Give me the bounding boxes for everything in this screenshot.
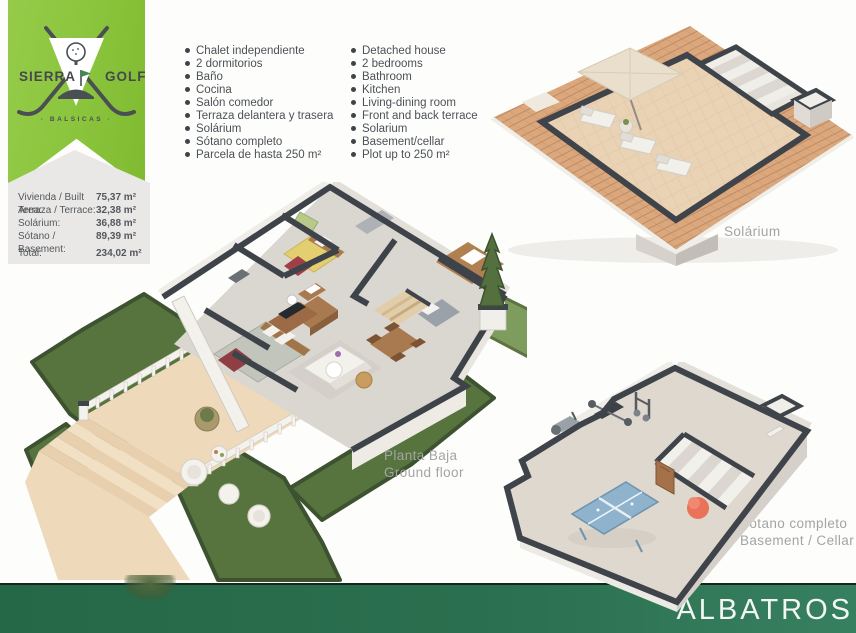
bullet-icon bbox=[185, 152, 190, 157]
feature-text: Terraza delantera y trasera bbox=[196, 110, 333, 122]
side-table bbox=[620, 119, 633, 133]
bullet-icon bbox=[351, 126, 356, 131]
ground-floor-plan-label: Planta Baja Ground floor bbox=[384, 447, 464, 481]
label-line-en: Ground floor bbox=[384, 464, 464, 481]
feature-text: Cocina bbox=[196, 84, 232, 96]
feature-text: Parcela de hasta 250 m² bbox=[196, 149, 321, 161]
ground-floor-plan-illustration bbox=[22, 182, 527, 582]
feature-text: Bathroom bbox=[362, 71, 412, 83]
list-item: 2 dormitorios bbox=[185, 58, 350, 71]
bullet-icon bbox=[185, 61, 190, 66]
bullet-icon bbox=[351, 113, 356, 118]
list-item: Solarium bbox=[351, 123, 496, 136]
features-list-spanish: Chalet independiente 2 dormitorios Baño … bbox=[185, 45, 350, 162]
bullet-icon bbox=[185, 100, 190, 105]
list-item: Sótano completo bbox=[185, 136, 350, 149]
list-item: Kitchen bbox=[351, 84, 496, 97]
list-item: Salón comedor bbox=[185, 97, 350, 110]
feature-text: Living-dining room bbox=[362, 97, 456, 109]
logo-word-sierra: SIERRA bbox=[19, 69, 76, 84]
list-item: Detached house bbox=[351, 45, 496, 58]
list-item: Plot up to 250 m² bbox=[351, 149, 496, 162]
bullet-icon bbox=[185, 74, 190, 79]
feature-text: Plot up to 250 m² bbox=[362, 149, 450, 161]
bullet-icon bbox=[351, 74, 356, 79]
vase bbox=[335, 351, 341, 357]
feature-text: Salón comedor bbox=[196, 97, 273, 109]
feature-text: Basement/cellar bbox=[362, 136, 444, 148]
cypress-tree bbox=[478, 234, 508, 330]
bullet-icon bbox=[185, 139, 190, 144]
bullet-icon bbox=[185, 48, 190, 53]
features-list-english: Detached house 2 bedrooms Bathroom Kitch… bbox=[351, 45, 496, 162]
bullet-icon bbox=[351, 139, 356, 144]
logo-mound bbox=[58, 90, 94, 100]
list-item: Terraza delantera y trasera bbox=[185, 110, 350, 123]
list-item: Bathroom bbox=[351, 71, 496, 84]
bullet-icon bbox=[185, 113, 190, 118]
list-item: Chalet independiente bbox=[185, 45, 350, 58]
label-line-es: Planta Baja bbox=[384, 447, 464, 464]
logo-word-golf: GOLF bbox=[105, 69, 147, 84]
list-item: Solárium bbox=[185, 123, 350, 136]
basement-plan-illustration bbox=[486, 362, 856, 612]
feature-text: Baño bbox=[196, 71, 223, 83]
feature-text: Solarium bbox=[362, 123, 407, 135]
list-item: Parcela de hasta 250 m² bbox=[185, 149, 350, 162]
feature-text: 2 bedrooms bbox=[362, 58, 423, 70]
bean-bag bbox=[687, 497, 709, 519]
brochure-page: SIERRA GOLF · BALSICAS · Vivienda / Buil… bbox=[0, 0, 856, 633]
bullet-icon bbox=[351, 48, 356, 53]
list-item: Cocina bbox=[185, 84, 350, 97]
list-item: 2 bedrooms bbox=[351, 58, 496, 71]
bullet-icon bbox=[351, 87, 356, 92]
solarium-plan-label: Solárium bbox=[724, 223, 780, 240]
feature-text: Sótano completo bbox=[196, 136, 282, 148]
list-item: Basement/cellar bbox=[351, 136, 496, 149]
list-item: Front and back terrace bbox=[351, 110, 496, 123]
coffee-table bbox=[326, 362, 342, 378]
basket bbox=[356, 372, 372, 388]
list-item: Baño bbox=[185, 71, 350, 84]
feature-text: Solárium bbox=[196, 123, 241, 135]
logo-subtitle-balsicas: · BALSICAS · bbox=[8, 116, 145, 123]
bullet-icon bbox=[351, 152, 356, 157]
grass-tuft bbox=[124, 575, 176, 601]
bullet-icon bbox=[351, 61, 356, 66]
feature-text: 2 dormitorios bbox=[196, 58, 262, 70]
feature-text: Kitchen bbox=[362, 84, 400, 96]
bullet-icon bbox=[185, 87, 190, 92]
feature-text: Front and back terrace bbox=[362, 110, 478, 122]
bullet-icon bbox=[185, 126, 190, 131]
bullet-icon bbox=[351, 100, 356, 105]
feature-text: Chalet independiente bbox=[196, 45, 305, 57]
solarium-plan-illustration bbox=[478, 16, 856, 266]
feature-text: Detached house bbox=[362, 45, 446, 57]
list-item: Living-dining room bbox=[351, 97, 496, 110]
